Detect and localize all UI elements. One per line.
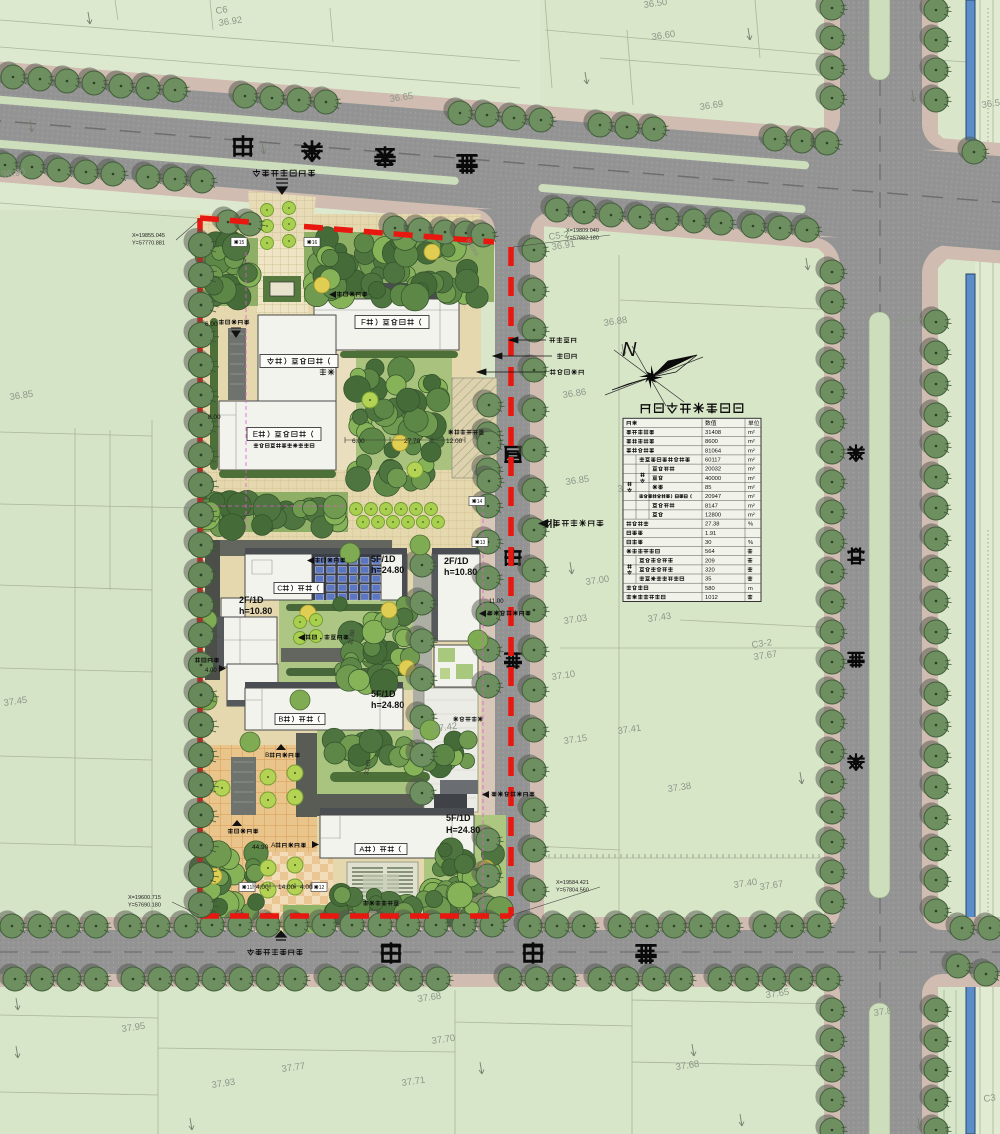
- svg-text:Y=57690.180: Y=57690.180: [128, 903, 161, 909]
- svg-text:12.00: 12.00: [446, 438, 463, 445]
- svg-text:m²: m²: [748, 494, 755, 500]
- svg-text:31408: 31408: [705, 430, 721, 436]
- svg-text:564: 564: [705, 549, 715, 555]
- svg-text:X=19600.715: X=19600.715: [128, 895, 161, 901]
- svg-text:35: 35: [705, 577, 711, 583]
- svg-text:5F/1D: 5F/1D: [371, 554, 396, 564]
- svg-text:2: 2: [322, 885, 325, 891]
- svg-text:1.91: 1.91: [705, 531, 716, 537]
- svg-text:C6: C6: [215, 4, 229, 17]
- svg-text:27.70: 27.70: [404, 438, 421, 445]
- svg-text:11.00: 11.00: [489, 599, 504, 605]
- svg-text:6.00: 6.00: [205, 321, 218, 328]
- svg-text:X=19855.045: X=19855.045: [132, 233, 165, 239]
- svg-text:6.00: 6.00: [352, 438, 365, 445]
- svg-text:30: 30: [705, 540, 711, 546]
- svg-text:m²: m²: [748, 458, 755, 464]
- svg-text:m²: m²: [748, 467, 755, 473]
- svg-text:m²: m²: [748, 476, 755, 482]
- svg-text:1012: 1012: [705, 595, 718, 601]
- svg-text:4.00: 4.00: [205, 668, 217, 674]
- svg-text:2F/1D: 2F/1D: [444, 556, 469, 566]
- svg-text:60117: 60117: [705, 458, 721, 464]
- svg-text:C: C: [277, 584, 283, 593]
- svg-text:m²: m²: [748, 512, 755, 518]
- svg-text:B: B: [265, 752, 269, 759]
- svg-text:209: 209: [705, 558, 715, 564]
- svg-text:20947: 20947: [705, 494, 721, 500]
- svg-text:h=24.80: h=24.80: [371, 565, 404, 575]
- svg-text:580: 580: [705, 586, 715, 592]
- svg-text:4: 4: [480, 499, 483, 505]
- svg-text:14.00: 14.00: [278, 884, 295, 891]
- svg-text:320: 320: [705, 567, 715, 573]
- svg-text:F: F: [361, 318, 366, 327]
- svg-text:C3: C3: [983, 1092, 997, 1105]
- svg-text:5: 5: [242, 240, 245, 246]
- svg-text:5F/1D: 5F/1D: [446, 813, 471, 823]
- svg-text:40000: 40000: [705, 476, 721, 482]
- svg-text:h=24.80: h=24.80: [371, 700, 404, 710]
- svg-text:44.90: 44.90: [252, 844, 269, 851]
- svg-text:6: 6: [315, 240, 318, 246]
- svg-text:20032: 20032: [705, 467, 721, 473]
- svg-text:8147: 8147: [705, 503, 718, 509]
- svg-text:85: 85: [705, 485, 711, 491]
- svg-text:%: %: [748, 522, 753, 528]
- svg-text:8600: 8600: [705, 439, 718, 445]
- svg-text:Y=57804.560: Y=57804.560: [556, 888, 589, 894]
- svg-text:m²: m²: [748, 448, 755, 454]
- svg-text:m²: m²: [748, 430, 755, 436]
- svg-text:2F/1D: 2F/1D: [239, 595, 264, 605]
- svg-text:X=19809.040: X=19809.040: [566, 228, 599, 234]
- svg-text:5F/1D: 5F/1D: [371, 689, 396, 699]
- svg-text:8.00: 8.00: [208, 414, 221, 421]
- svg-text:m: m: [748, 586, 753, 592]
- svg-text:1: 1: [250, 885, 253, 891]
- svg-text:H=24.80: H=24.80: [446, 825, 480, 835]
- svg-text:%: %: [748, 540, 753, 546]
- svg-text:h=10.80: h=10.80: [239, 606, 272, 616]
- svg-text:数值: 数值: [705, 419, 717, 427]
- svg-text:X=19584.421: X=19584.421: [556, 880, 589, 886]
- svg-text:27.38: 27.38: [705, 522, 720, 528]
- svg-text:Y=57770.881: Y=57770.881: [132, 241, 165, 247]
- svg-text:36.55: 36.55: [981, 97, 1000, 111]
- svg-text:B: B: [278, 715, 283, 724]
- svg-text:12800: 12800: [705, 512, 721, 518]
- svg-text:E: E: [253, 430, 258, 439]
- svg-text:m²: m²: [748, 439, 755, 445]
- svg-text:3: 3: [483, 540, 486, 546]
- svg-text:4.00: 4.00: [256, 884, 269, 891]
- svg-text:单位: 单位: [748, 419, 760, 427]
- svg-text:m²: m²: [748, 485, 755, 491]
- svg-text:4.00: 4.00: [300, 884, 313, 891]
- svg-text:m²: m²: [748, 503, 755, 509]
- svg-text:h=10.80: h=10.80: [444, 567, 477, 577]
- svg-text:81064: 81064: [705, 448, 722, 454]
- svg-text:A: A: [359, 845, 364, 854]
